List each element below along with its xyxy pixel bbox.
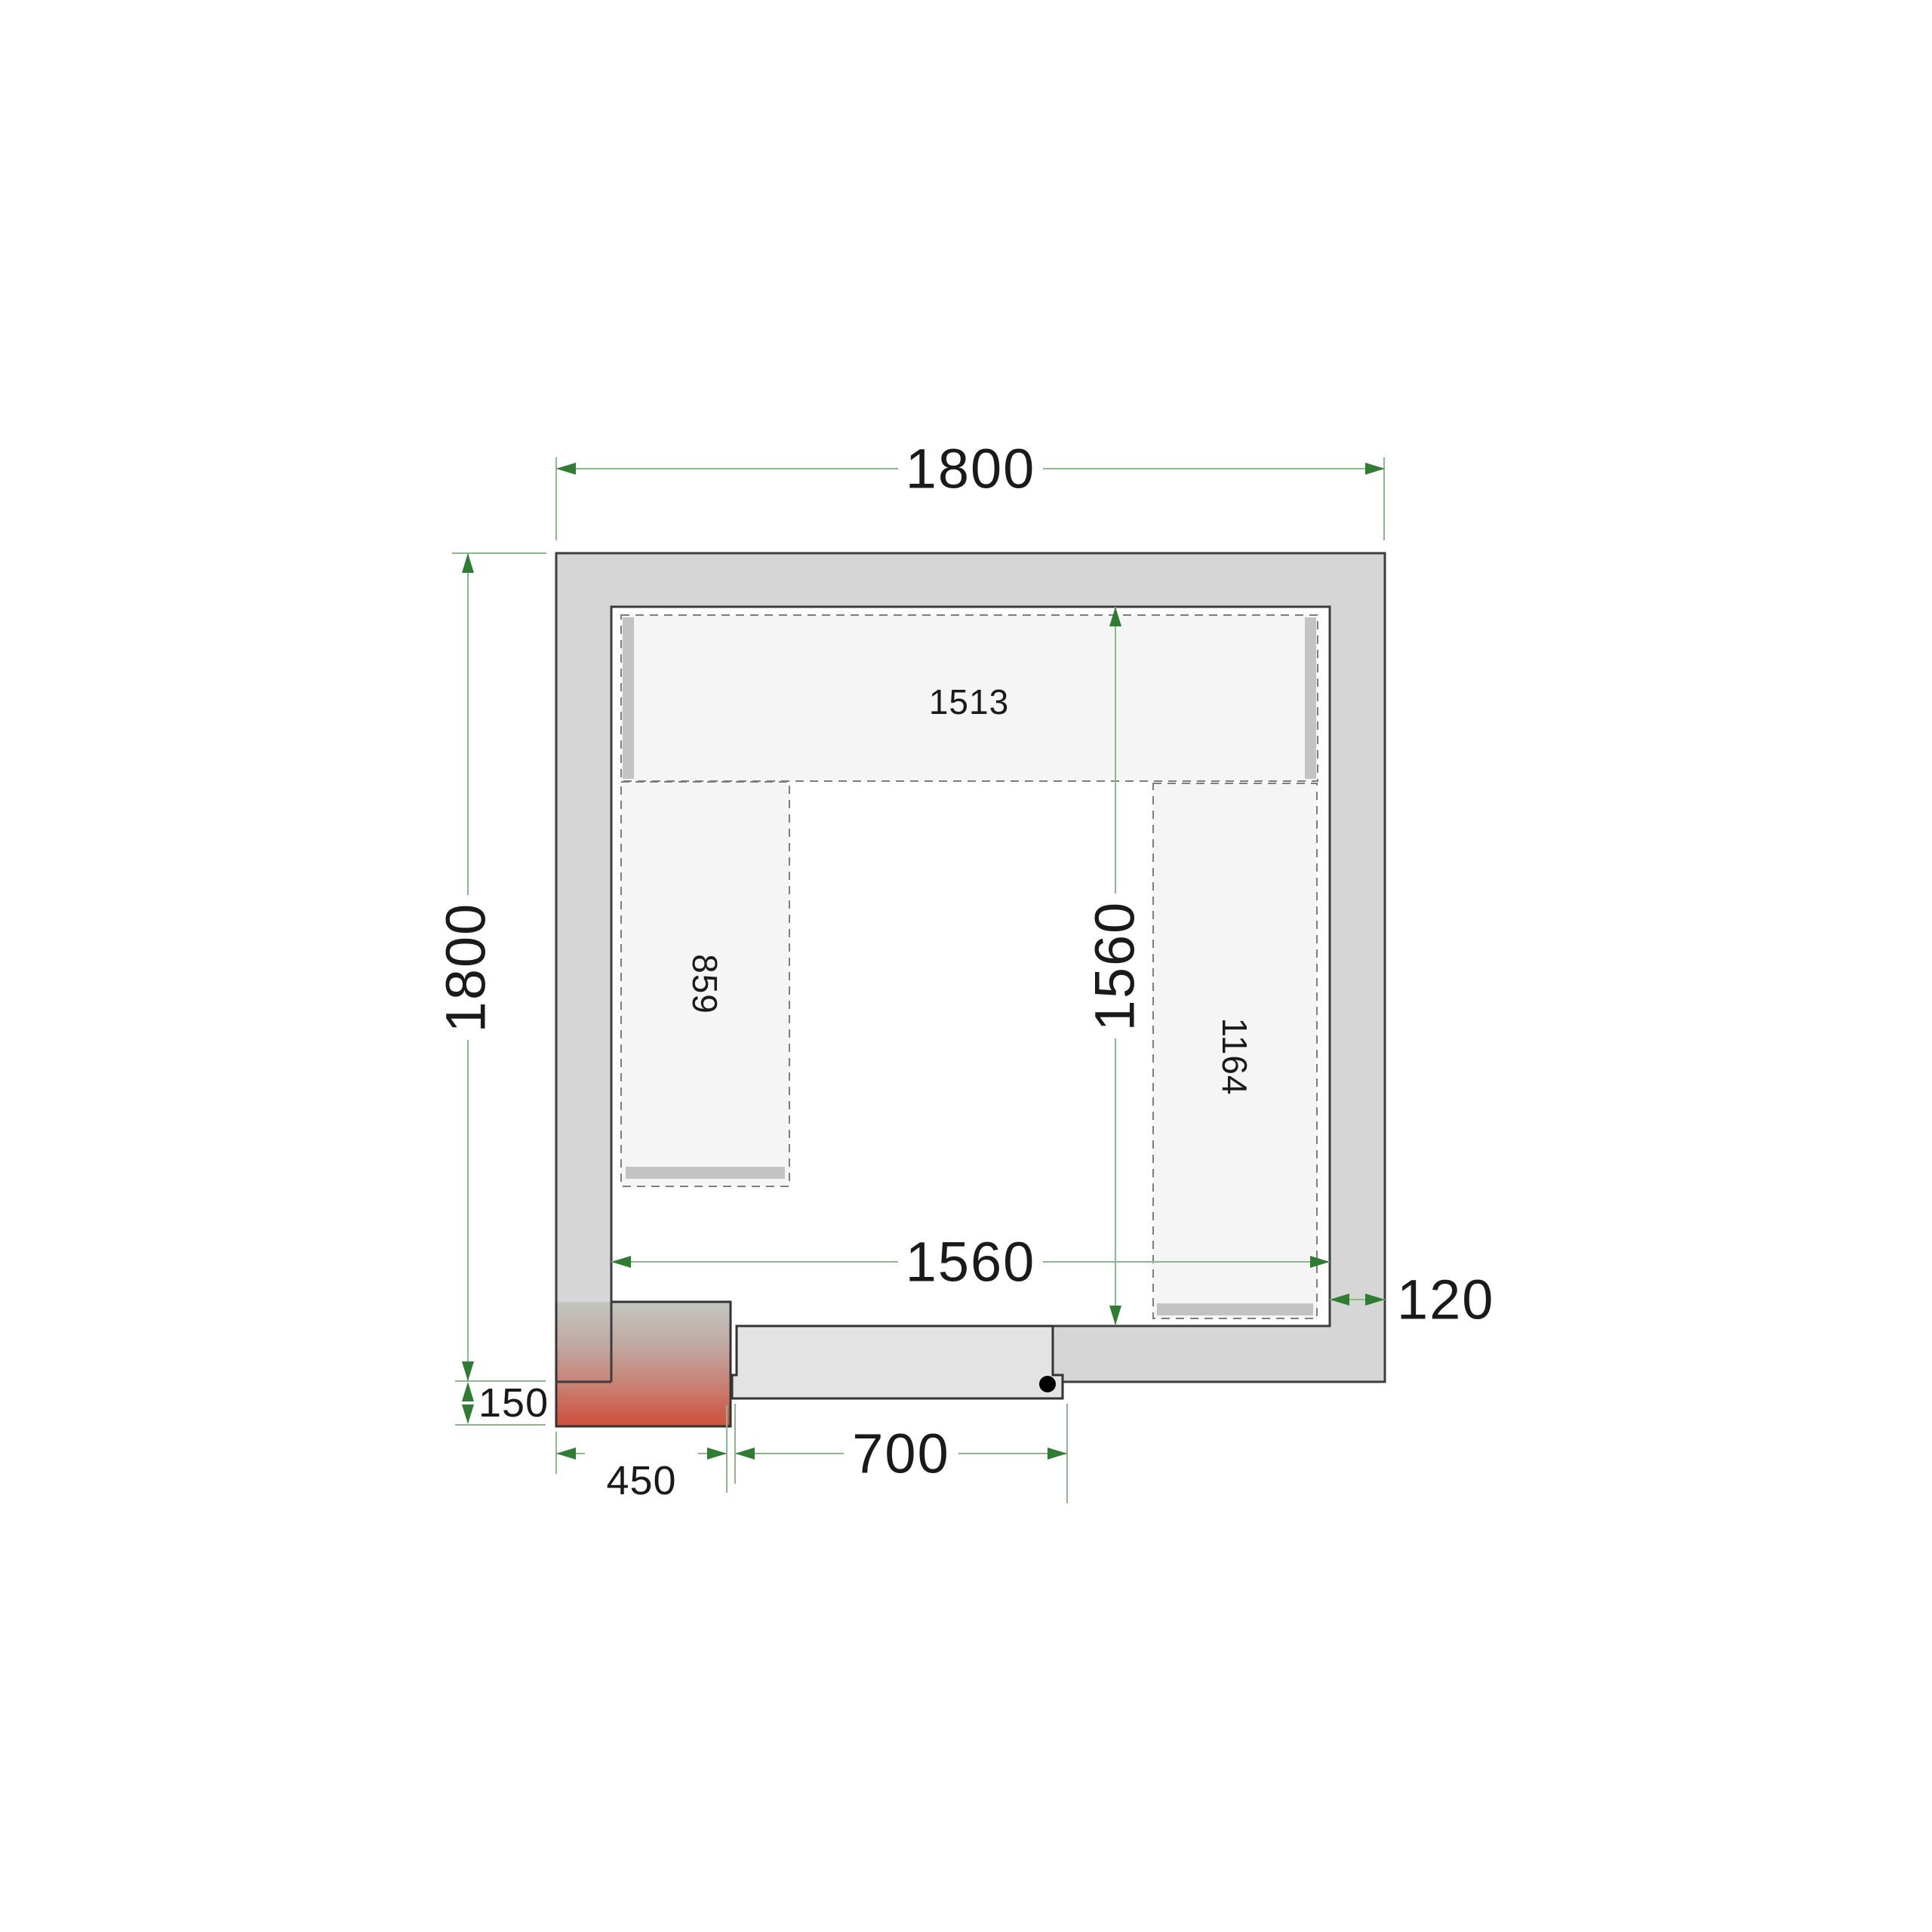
floor-plan-page: 1513 859 1164 1800 1800 [0,0,1932,1932]
dim-outer-height-arrow-top [462,553,474,573]
dim-inner-width-arrow-left [611,1256,631,1268]
dim-unit-width-label: 450 [606,1458,676,1503]
dim-unit-protrusion-arrow-down [462,1404,474,1424]
top-shelf-right-support [1305,617,1316,779]
dim-outer-width-arrow-left [556,463,576,475]
left-shelf-label: 859 [685,954,724,1014]
dim-unit-width-arrow-left [556,1447,576,1460]
right-shelf-end-cap [1157,1303,1313,1315]
door-leaf [732,1326,1063,1398]
left-shelf-end-cap [626,1167,785,1179]
top-shelf-label: 1513 [929,682,1009,721]
dim-door-width-label: 700 [852,1423,949,1485]
dim-unit-protrusion-arrow-up [462,1382,474,1401]
floor-plan-drawing: 1513 859 1164 1800 1800 [0,0,1932,1932]
cooling-unit-body [556,1302,731,1426]
dim-inner-height-arrow-bottom [1109,1306,1121,1325]
dim-outer-width-arrow-right [1365,463,1385,475]
dim-door-width-arrow-right [1048,1447,1067,1460]
dim-wall-thickness-label: 120 [1397,1269,1494,1331]
dim-inner-width-arrow-right [1310,1256,1330,1268]
dim-outer-width-label: 1800 [906,438,1036,500]
dim-door-width: 700 [735,1404,1067,1503]
top-shelf-left-support [623,617,634,779]
right-shelf-label: 1164 [1215,1018,1254,1096]
dim-unit-width-arrow-right [707,1447,727,1460]
dim-unit-protrusion-label: 150 [478,1380,549,1426]
dim-unit-protrusion: 150 [455,1380,549,1426]
dim-door-width-arrow-left [735,1447,755,1460]
dim-outer-height-arrow-bottom [462,1361,474,1381]
left-shelf: 859 [621,782,789,1186]
dim-outer-width: 1800 [556,438,1385,541]
top-shelf: 1513 [621,615,1318,781]
door-hinge-dot [1039,1376,1056,1392]
right-shelf: 1164 [1153,783,1317,1318]
dim-inner-width-label: 1560 [906,1231,1036,1294]
dim-outer-height-label: 1800 [435,903,497,1033]
dim-inner-height-label: 1560 [1084,901,1146,1032]
dim-outer-height: 1800 [435,553,547,1381]
cooling-unit [556,1302,731,1426]
